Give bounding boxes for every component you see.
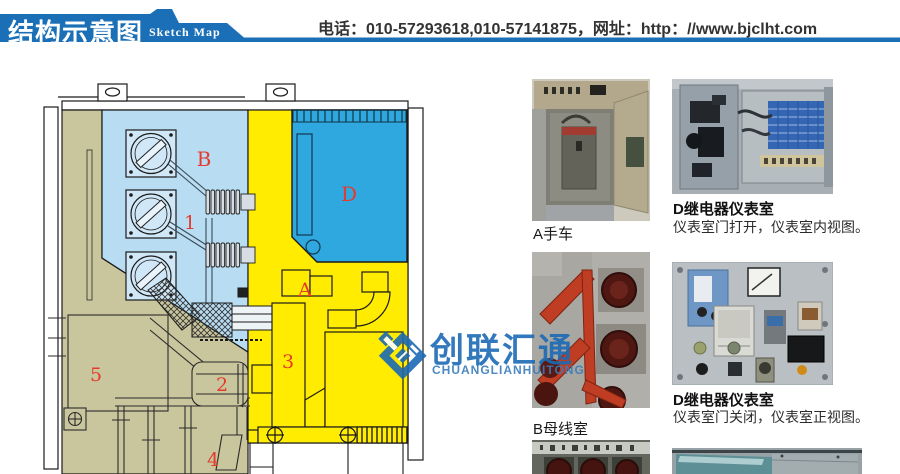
page-title: 结构示意图 [8, 13, 143, 50]
contact-info: 电话：010-57293618,010-57141875，网址：http：//w… [318, 15, 817, 39]
photo-d-room-closed [672, 262, 833, 385]
label-part-4: 4 [207, 449, 219, 471]
page-title-english: Sketch Map [149, 25, 221, 40]
busbar-bushings [126, 130, 176, 300]
photo-d-room-open [672, 79, 833, 194]
photo-partial-bottom-left [532, 440, 650, 474]
company-logo-icon [374, 326, 428, 382]
photo-partial-bottom-right [672, 448, 862, 474]
caption-photo-d-open-title: D继电器仪表室 [673, 198, 774, 219]
caption-photo-b: B母线室 [533, 418, 588, 439]
caption-photo-d-open-desc: 仪表室门打开，仪表室内视图。 [673, 217, 869, 237]
photo-a-handcart [532, 79, 650, 221]
base-lines [250, 443, 403, 474]
label-part-1: 1 [184, 212, 196, 234]
catalog-page: 结构示意图 Sketch Map 电话：010-57293618,010-571… [0, 0, 900, 474]
company-watermark: 创联汇通 CHUANGLIANHUITONG [374, 322, 574, 384]
caption-photo-d-closed-desc: 仪表室门关闭，仪表室正视图。 [673, 407, 869, 427]
label-room-d: D [341, 182, 357, 206]
structure-diagram: B 1 D A 3 5 2 4 [40, 70, 440, 474]
label-room-b: B [197, 147, 212, 171]
label-part-3: 3 [282, 351, 294, 373]
label-part-5: 5 [90, 364, 102, 386]
company-name-en: CHUANGLIANHUITONG [432, 363, 585, 377]
caption-photo-a: A手车 [533, 223, 573, 244]
label-room-a: A [297, 279, 312, 301]
label-part-2: 2 [216, 374, 228, 396]
